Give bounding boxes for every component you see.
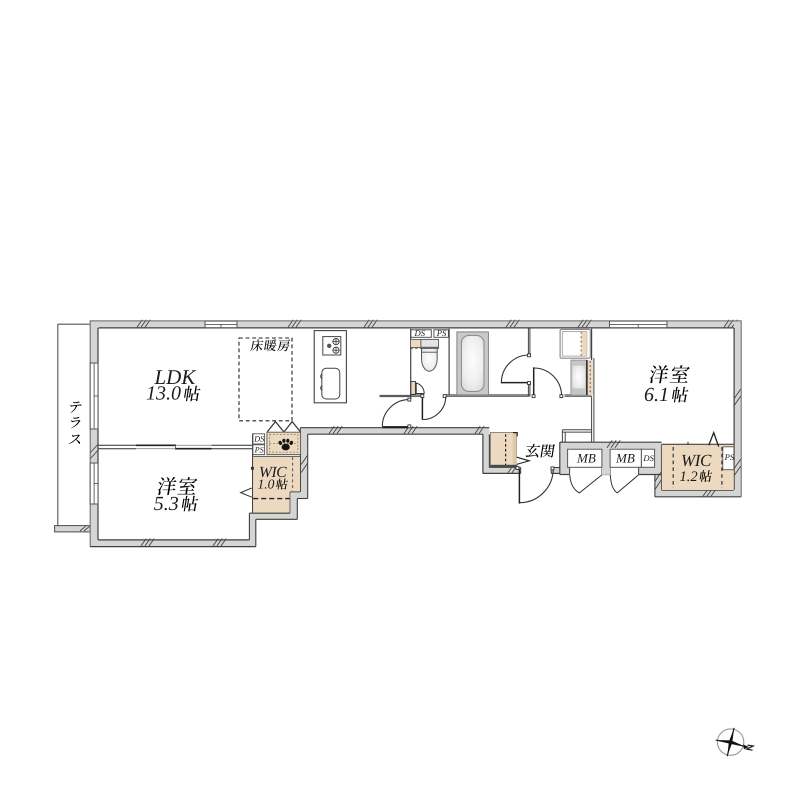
svg-text:6.1: 6.1 (644, 384, 669, 406)
svg-text:PS: PS (724, 452, 735, 462)
svg-text:PS: PS (436, 328, 447, 338)
svg-text:1.0: 1.0 (258, 476, 275, 491)
svg-text:WIC: WIC (681, 451, 712, 470)
svg-text:13.0: 13.0 (146, 383, 181, 405)
svg-text:DS: DS (253, 434, 264, 443)
svg-text:DS: DS (642, 453, 654, 463)
svg-text:PS: PS (254, 445, 264, 454)
svg-text:1.2: 1.2 (680, 469, 698, 485)
svg-text:DS: DS (414, 328, 426, 338)
svg-text:MB: MB (576, 451, 596, 466)
svg-text:MB: MB (615, 451, 635, 466)
svg-text:5.3: 5.3 (154, 493, 179, 515)
